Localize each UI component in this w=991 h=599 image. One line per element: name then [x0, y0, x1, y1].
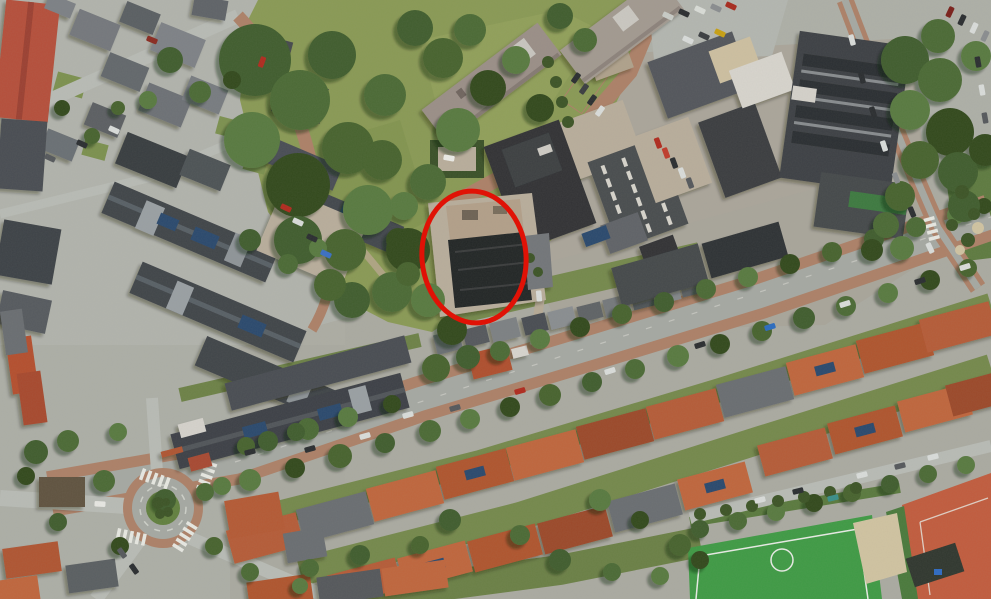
photo-grain-overlay [0, 0, 991, 599]
satellite-map-view [0, 0, 991, 599]
aerial-photo [0, 0, 991, 599]
